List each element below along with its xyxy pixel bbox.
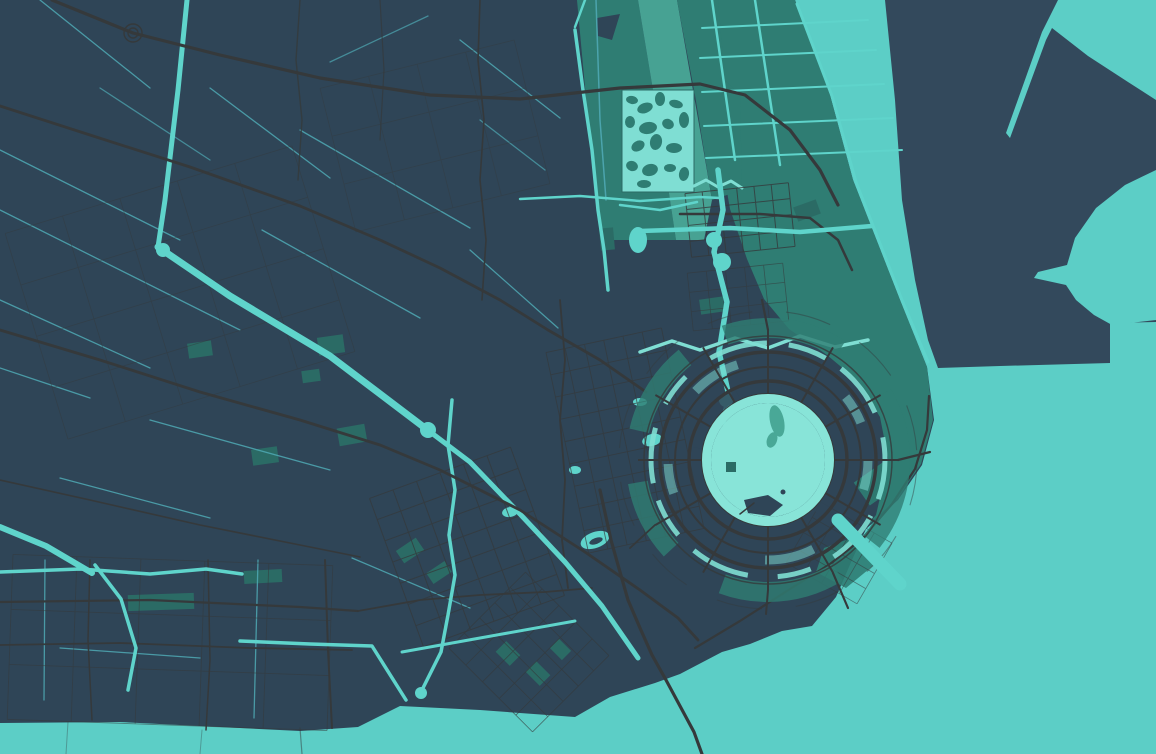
wetland-blob <box>666 143 682 153</box>
canal-node <box>713 253 731 271</box>
field <box>301 369 320 383</box>
field <box>244 569 283 584</box>
map-viewport <box>0 0 1156 754</box>
canal-node <box>706 232 722 248</box>
wetland-blob <box>664 164 676 172</box>
wetland-blob <box>625 116 635 128</box>
canal-node <box>420 422 436 438</box>
wetland-blob <box>655 92 665 106</box>
lake-dot <box>781 490 786 495</box>
canal-node <box>156 243 170 257</box>
map-canvas[interactable] <box>0 0 1156 754</box>
wetland-blob <box>637 180 651 188</box>
wetland-blob <box>679 112 689 128</box>
lake-pier-square <box>726 462 736 472</box>
canal-node <box>415 687 427 699</box>
